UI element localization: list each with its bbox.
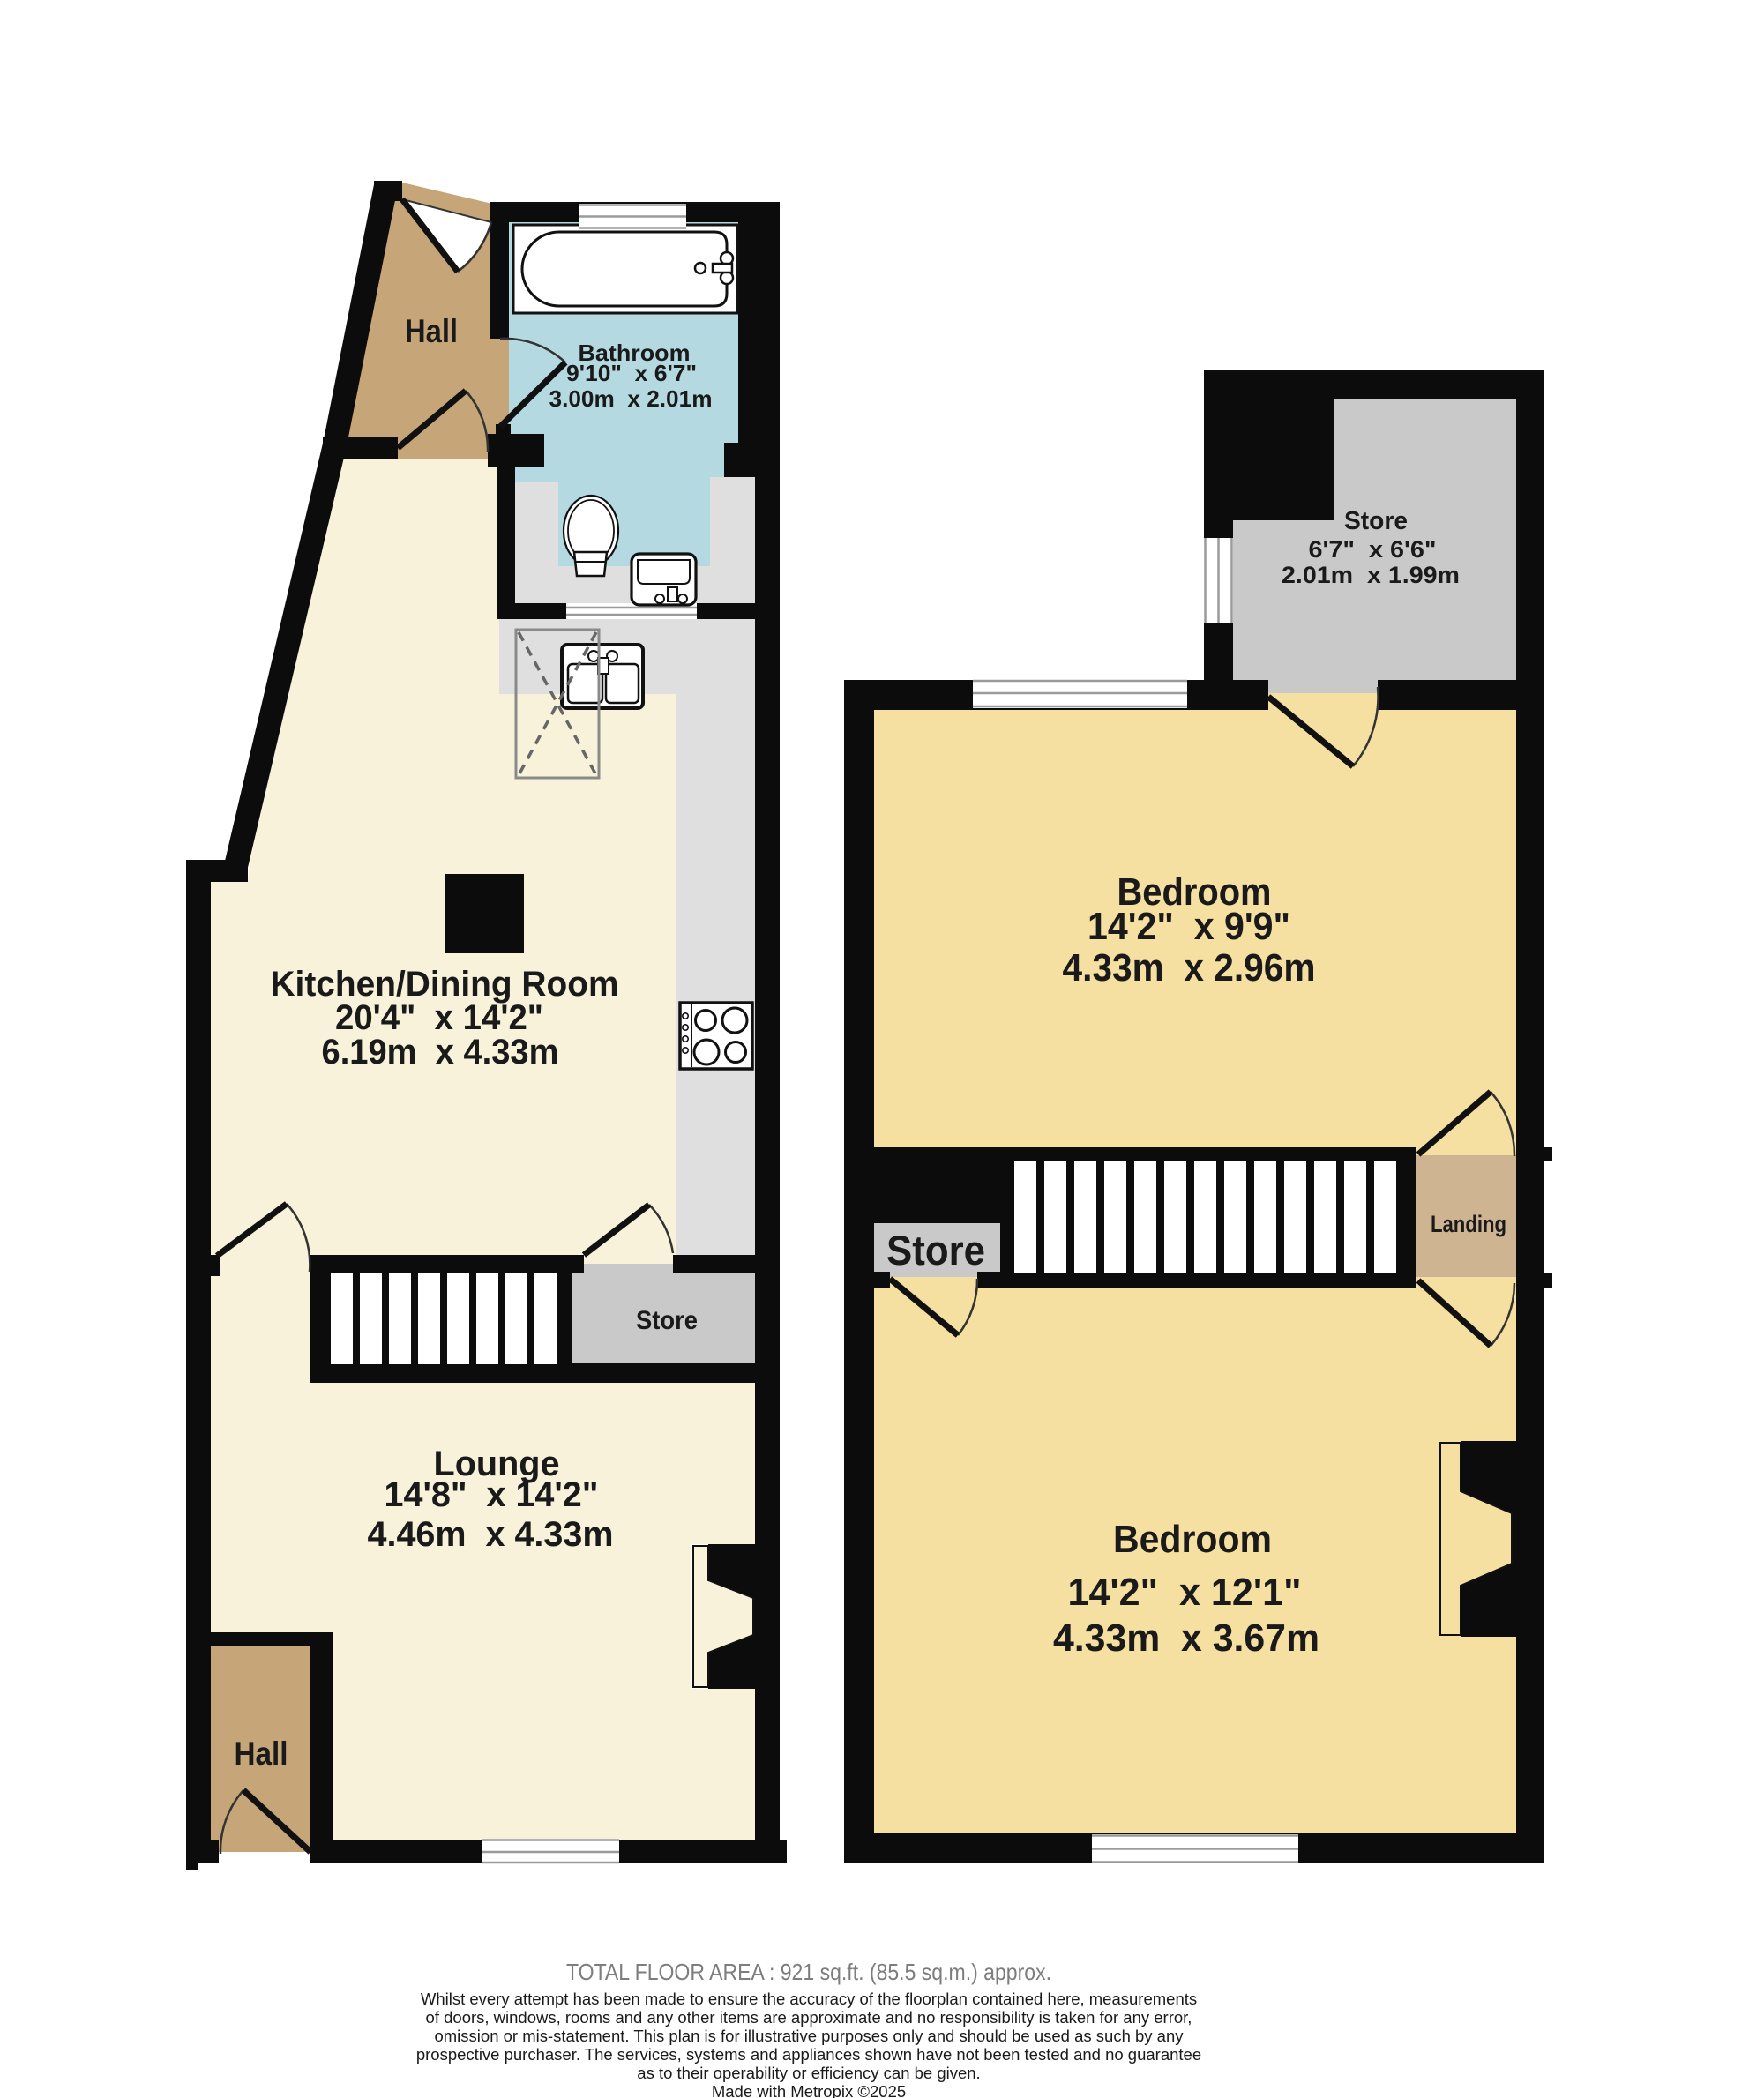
svg-text:Hall: Hall xyxy=(235,1736,288,1772)
svg-text:9'10" x 6'7": 9'10" x 6'7" xyxy=(566,360,697,386)
svg-text:6.19m x 4.33m: 6.19m x 4.33m xyxy=(322,1033,559,1071)
svg-text:Store: Store xyxy=(636,1306,698,1335)
svg-text:14'2" x 12'1": 14'2" x 12'1" xyxy=(1068,1571,1302,1614)
svg-text:Store: Store xyxy=(1344,507,1408,535)
svg-text:4.33m x 2.96m: 4.33m x 2.96m xyxy=(1063,946,1316,989)
svg-text:Bedroom: Bedroom xyxy=(1113,1518,1272,1561)
svg-text:2.01m x 1.99m: 2.01m x 1.99m xyxy=(1282,562,1460,588)
svg-text:Hall: Hall xyxy=(405,313,458,349)
svg-text:14'2" x 9'9": 14'2" x 9'9" xyxy=(1088,905,1290,948)
svg-text:as to their operability or eff: as to their operability or efficiency ca… xyxy=(637,2064,980,2082)
svg-text:prospective purchaser. The ser: prospective purchaser. The services, sys… xyxy=(416,2045,1201,2064)
svg-text:6'7" x 6'6": 6'7" x 6'6" xyxy=(1309,536,1437,563)
svg-text:TOTAL FLOOR AREA : 921 sq.ft.: TOTAL FLOOR AREA : 921 sq.ft. (85.5 sq.m… xyxy=(566,1959,1051,1985)
svg-text:4.46m x 4.33m: 4.46m x 4.33m xyxy=(368,1515,614,1554)
svg-text:14'8" x 14'2": 14'8" x 14'2" xyxy=(385,1475,599,1514)
svg-text:4.33m x 3.67m: 4.33m x 3.67m xyxy=(1053,1616,1319,1660)
svg-text:omission or mis-statement. Thi: omission or mis-statement. This plan is … xyxy=(434,2027,1184,2045)
svg-text:Made with Metropix ©2025: Made with Metropix ©2025 xyxy=(712,2082,906,2098)
svg-text:20'4" x 14'2": 20'4" x 14'2" xyxy=(335,998,543,1037)
svg-text:Landing: Landing xyxy=(1431,1211,1506,1237)
svg-text:of doors, windows, rooms and a: of doors, windows, rooms and any other i… xyxy=(426,2008,1192,2027)
svg-text:Store: Store xyxy=(886,1227,985,1273)
svg-text:3.00m x 2.01m: 3.00m x 2.01m xyxy=(549,385,713,412)
svg-text:Whilst every attempt has been: Whilst every attempt has been made to en… xyxy=(421,1990,1197,2008)
